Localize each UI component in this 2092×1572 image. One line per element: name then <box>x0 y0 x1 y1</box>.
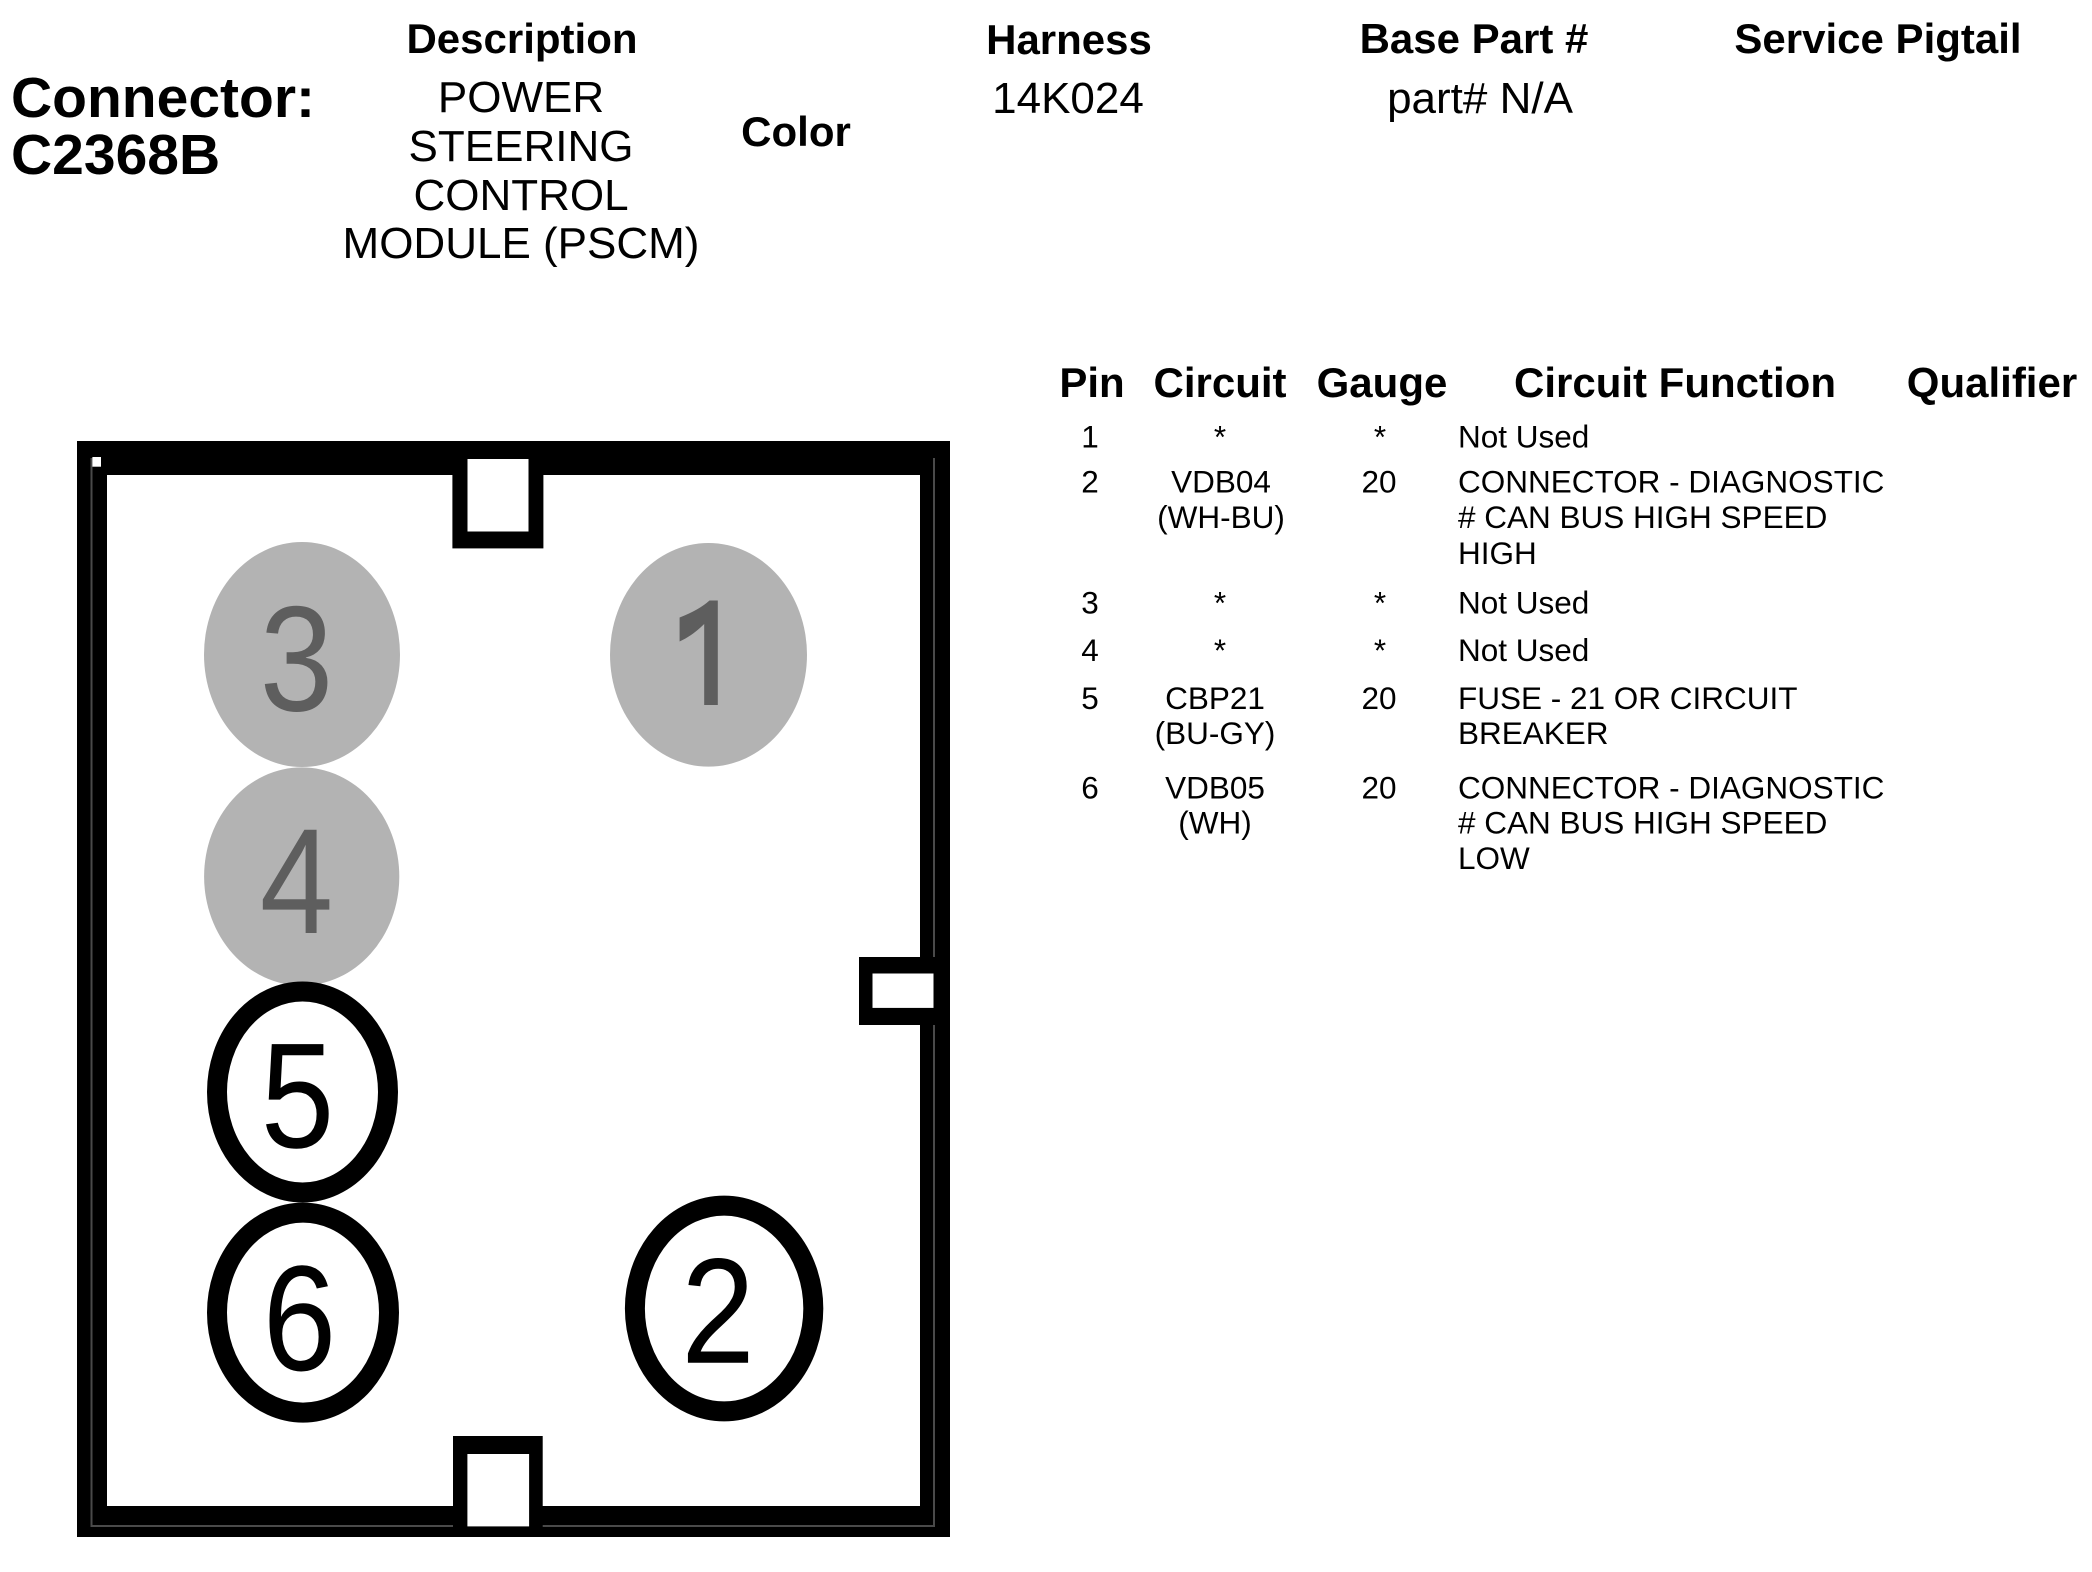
svg-text:C2368B: C2368B <box>11 123 220 187</box>
svg-text:Gauge: Gauge <box>1317 359 1448 406</box>
svg-text:Description: Description <box>406 15 637 62</box>
svg-text:(WH): (WH) <box>1178 805 1251 841</box>
svg-text:Pin: Pin <box>1059 359 1124 406</box>
svg-text:Service Pigtail: Service Pigtail <box>1734 15 2021 62</box>
svg-text:3: 3 <box>260 575 333 743</box>
svg-text:STEERING: STEERING <box>409 122 634 171</box>
svg-text:Qualifier: Qualifier <box>1907 359 2077 406</box>
svg-text:2: 2 <box>1081 464 1099 500</box>
svg-text:VDB05: VDB05 <box>1165 769 1265 805</box>
svg-text:(WH-BU): (WH-BU) <box>1157 499 1285 535</box>
svg-text:# CAN BUS HIGH SPEED: # CAN BUS HIGH SPEED <box>1458 499 1827 535</box>
svg-text:3: 3 <box>1081 584 1099 620</box>
svg-text:part# N/A: part# N/A <box>1387 74 1574 123</box>
svg-text:14K024: 14K024 <box>992 74 1144 123</box>
svg-text:6: 6 <box>1081 769 1099 805</box>
svg-text:CBP21: CBP21 <box>1165 680 1265 716</box>
svg-text:VDB04: VDB04 <box>1171 464 1271 500</box>
svg-text:Harness: Harness <box>986 16 1152 63</box>
svg-text:*: * <box>1214 584 1226 620</box>
svg-text:20: 20 <box>1361 769 1396 805</box>
svg-text:5: 5 <box>261 1011 334 1179</box>
svg-text:Color: Color <box>741 108 851 155</box>
svg-text:POWER: POWER <box>438 73 604 122</box>
svg-text:MODULE (PSCM): MODULE (PSCM) <box>343 219 700 268</box>
svg-text:*: * <box>1374 419 1386 455</box>
svg-text:BREAKER: BREAKER <box>1458 715 1609 751</box>
svg-text:20: 20 <box>1361 464 1396 500</box>
svg-text:5: 5 <box>1081 680 1099 716</box>
svg-text:4: 4 <box>260 797 333 965</box>
svg-text:*: * <box>1214 419 1226 455</box>
svg-text:Connector:: Connector: <box>11 66 315 130</box>
svg-text:HIGH: HIGH <box>1458 535 1537 571</box>
svg-text:CONNECTOR - DIAGNOSTIC: CONNECTOR - DIAGNOSTIC <box>1458 769 1884 805</box>
svg-text:*: * <box>1374 584 1386 620</box>
svg-text:# CAN BUS HIGH SPEED: # CAN BUS HIGH SPEED <box>1458 805 1827 841</box>
svg-text:Not Used: Not Used <box>1458 632 1589 668</box>
svg-text:Circuit: Circuit <box>1153 359 1286 406</box>
svg-text:Not Used: Not Used <box>1458 419 1589 455</box>
svg-text:4: 4 <box>1081 632 1099 668</box>
svg-text:LOW: LOW <box>1458 840 1530 876</box>
svg-text:*: * <box>1374 632 1386 668</box>
svg-text:CONNECTOR - DIAGNOSTIC: CONNECTOR - DIAGNOSTIC <box>1458 464 1884 500</box>
svg-text:FUSE - 21 OR CIRCUIT: FUSE - 21 OR CIRCUIT <box>1458 680 1798 716</box>
svg-text:2: 2 <box>681 1227 754 1395</box>
svg-text:Not Used: Not Used <box>1458 584 1589 620</box>
svg-text:1: 1 <box>1081 419 1099 455</box>
svg-text:Base Part #: Base Part # <box>1360 15 1589 62</box>
svg-text:20: 20 <box>1361 680 1396 716</box>
svg-text:CONTROL: CONTROL <box>413 171 628 220</box>
svg-text:(BU-GY): (BU-GY) <box>1155 715 1276 751</box>
svg-text:*: * <box>1214 632 1226 668</box>
svg-text:6: 6 <box>263 1234 336 1402</box>
svg-text:Circuit Function: Circuit Function <box>1514 359 1836 406</box>
